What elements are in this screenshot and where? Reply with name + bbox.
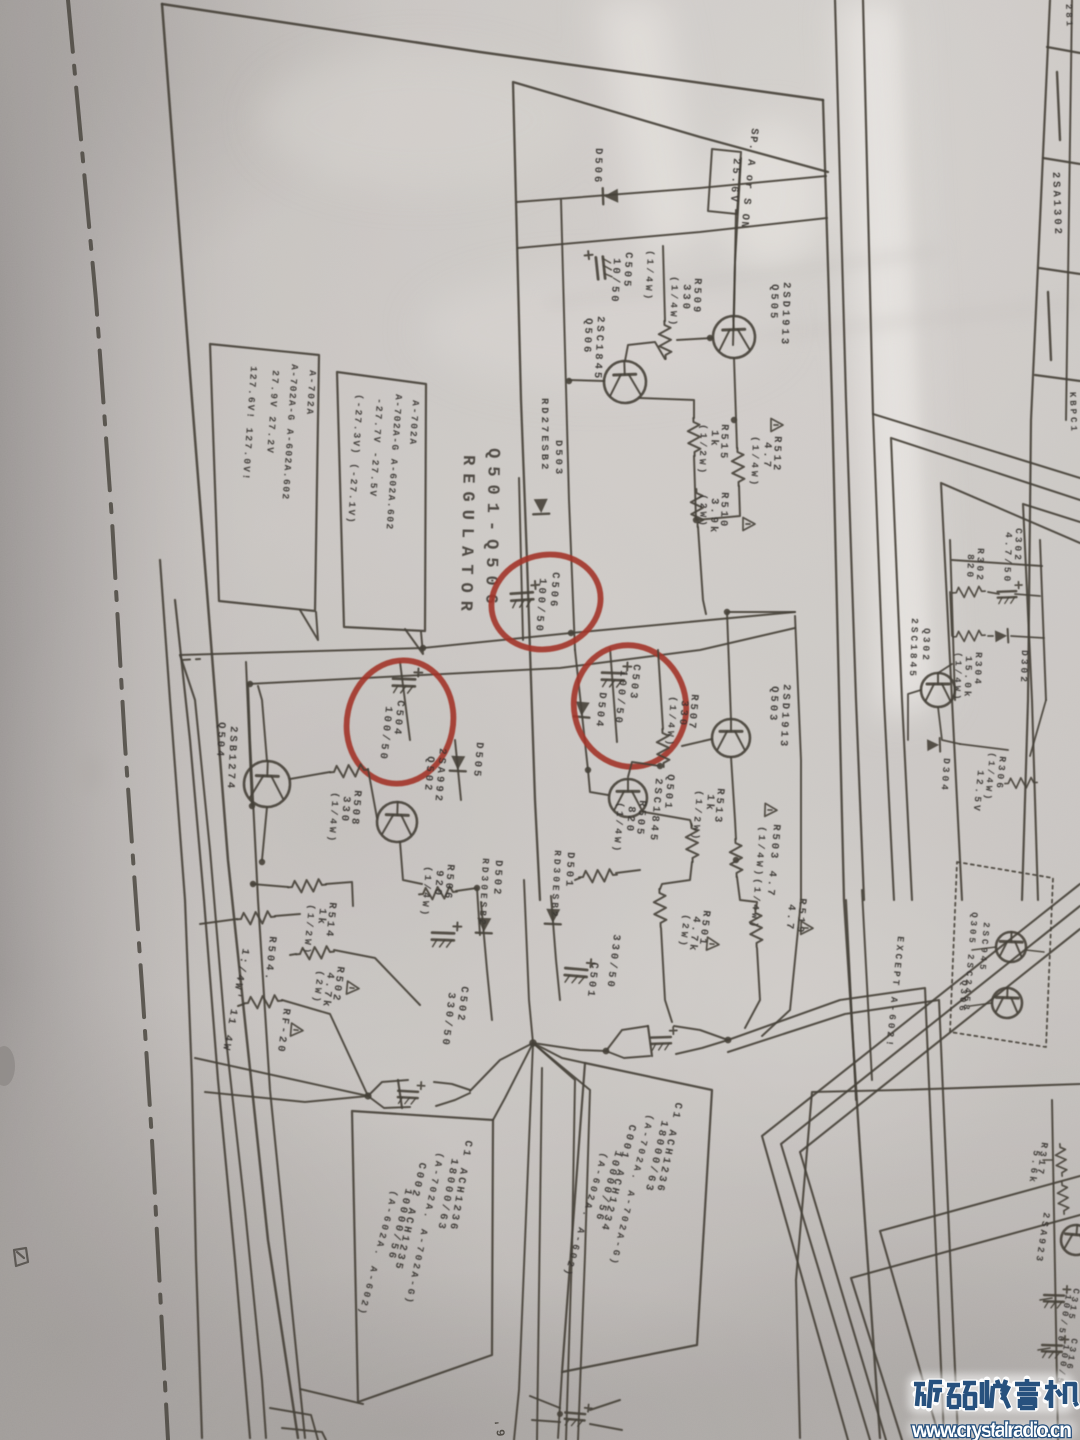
svg-text:Q504: Q504 [213,722,227,760]
svg-text:D506: D506 [591,148,604,186]
svg-text:Q506: Q506 [580,318,594,356]
svg-text:4.7: 4.7 [783,904,797,933]
svg-text:4.7/50: 4.7/50 [1001,532,1014,585]
svg-text:2SD1913: 2SD1913 [778,282,792,347]
svg-text:(1/4W): (1/4W) [748,436,761,489]
svg-text:D302: D302 [1018,650,1030,685]
svg-text:4.7: 4.7 [760,442,773,470]
svg-text:10/50: 10/50 [608,258,622,305]
svg-text:D503: D503 [552,440,564,477]
svg-text:(1/2W): (1/2W) [696,424,709,477]
svg-text:KBPC1: KBPC1 [1067,392,1078,434]
svg-text:REGULATOR: REGULATOR [455,455,477,619]
svg-text:Q501-Q506: Q501-Q506 [480,448,502,612]
svg-text:RD27ESB2: RD27ESB2 [538,398,550,472]
svg-text:6': 6' [493,1415,509,1437]
svg-text:D501: D501 [562,852,576,890]
svg-text:2SA1302: 2SA1302 [1049,172,1063,237]
svg-text:330: 330 [679,284,692,312]
svg-text:(2W): (2W) [697,494,709,529]
svg-text:(1/4W): (1/4W) [667,276,680,329]
svg-text:www.crystalradio.cn: www.crystalradio.cn [911,1419,1072,1440]
svg-text:2SC1845: 2SC1845 [907,618,920,679]
svg-text:D502: D502 [490,860,504,898]
svg-text:Q503: Q503 [766,686,780,724]
svg-text:Q302: Q302 [920,628,932,663]
svg-text:Q505: Q505 [767,284,780,322]
svg-text:281: 281 [1063,4,1074,30]
svg-text:820: 820 [964,554,976,580]
